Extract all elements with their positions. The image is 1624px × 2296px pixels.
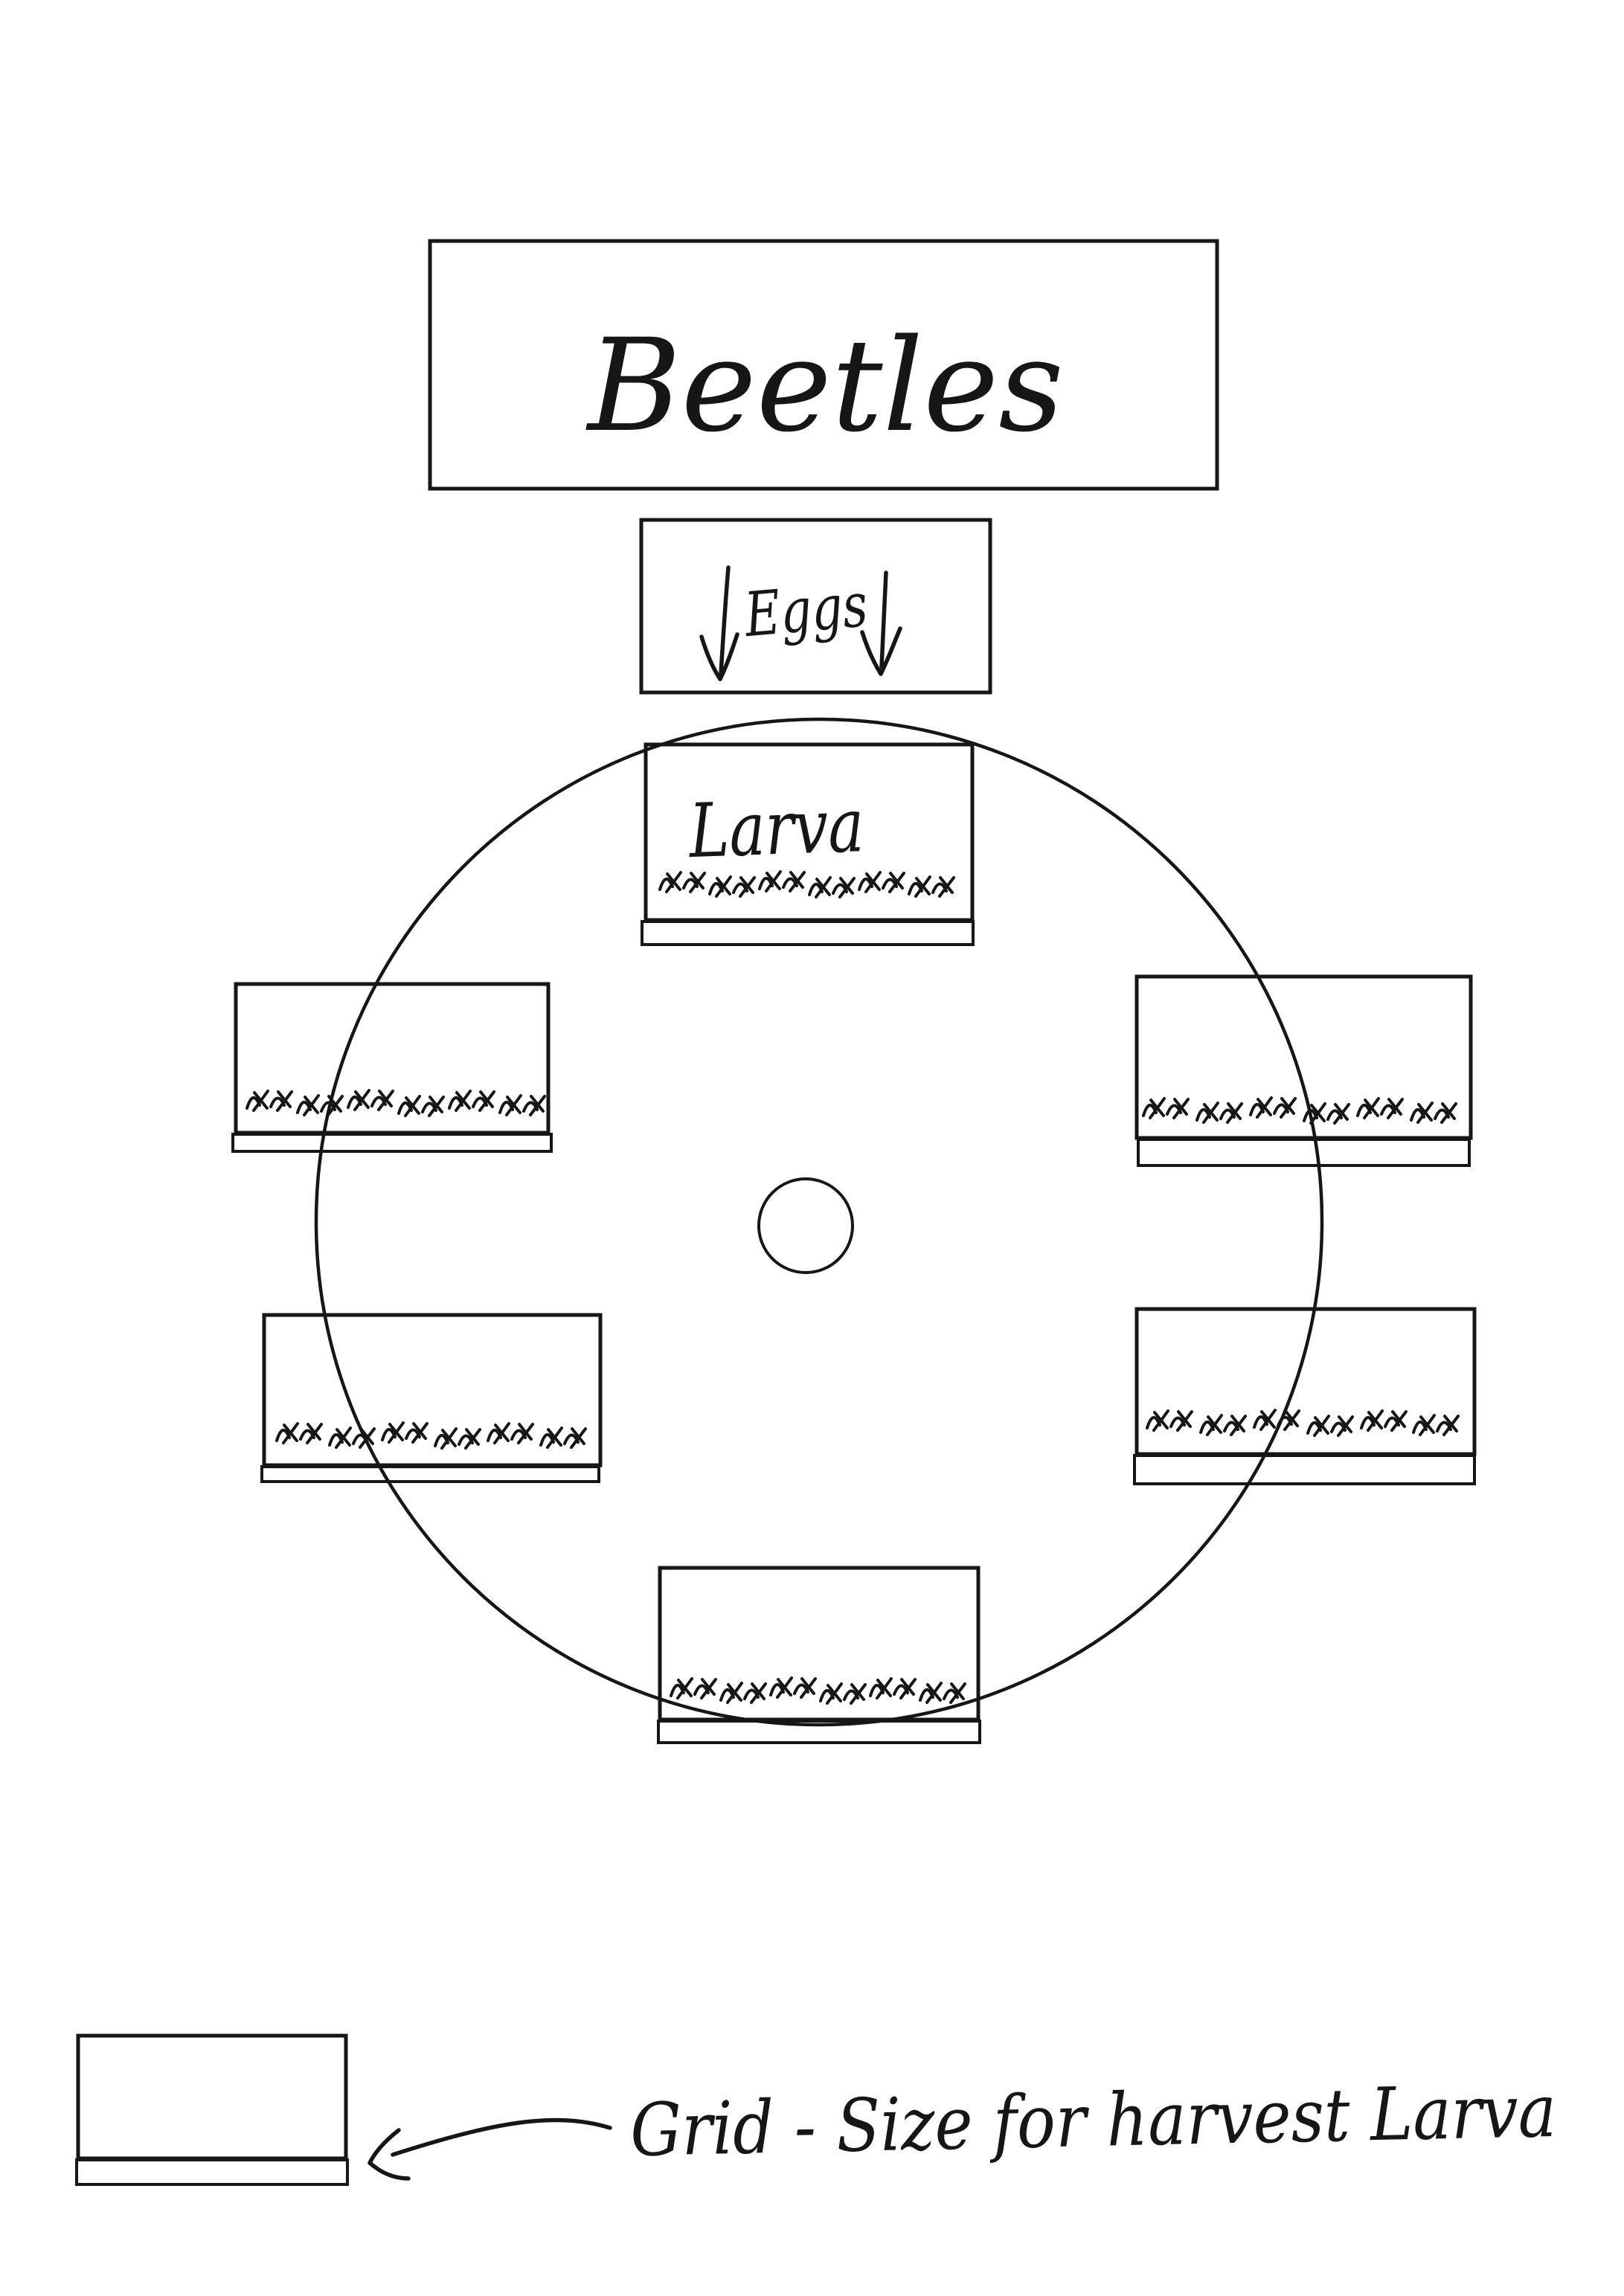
bin-left-lower bbox=[262, 1315, 600, 1482]
grid-sample-outline bbox=[78, 2036, 346, 2158]
center-axle-circle bbox=[759, 1179, 853, 1273]
scribble-mark bbox=[710, 877, 754, 896]
grid-sample-box bbox=[77, 2036, 347, 2184]
bin-tray bbox=[1138, 1139, 1469, 1165]
scribble-mark bbox=[660, 872, 705, 892]
scribble-mark bbox=[1308, 1416, 1352, 1435]
scribble-mark bbox=[821, 1684, 865, 1703]
larva-box-tray bbox=[642, 922, 973, 945]
larva-scribbles bbox=[247, 1090, 545, 1116]
scribble-mark bbox=[247, 1091, 292, 1110]
caption-group: Grid - Size for harvest Larva bbox=[370, 2069, 1557, 2178]
eggs-box-label: Eggs bbox=[741, 570, 870, 651]
bin-outline bbox=[1137, 1309, 1474, 1454]
scribble-mark bbox=[1197, 1103, 1242, 1122]
scribble-mark bbox=[348, 1090, 393, 1110]
arrow-shaft bbox=[882, 573, 886, 667]
scribble-mark bbox=[771, 1678, 815, 1697]
larva-scribbles bbox=[1147, 1410, 1458, 1435]
arrow-head-upper bbox=[370, 2130, 399, 2163]
scribble-mark bbox=[541, 1428, 585, 1447]
scribble-mark bbox=[435, 1429, 480, 1448]
bin-tray bbox=[262, 1467, 599, 1482]
arrow-head-lower bbox=[370, 2163, 408, 2178]
bin-right-lower bbox=[1134, 1309, 1474, 1484]
scribble-mark bbox=[1251, 1098, 1295, 1117]
bin-bottom bbox=[658, 1568, 980, 1743]
title-box-label: Beetles bbox=[585, 311, 1064, 460]
eggs-box: Eggs bbox=[641, 520, 990, 692]
bin-tray bbox=[1134, 1456, 1474, 1484]
scribble-mark bbox=[1358, 1099, 1402, 1118]
beetles-diagram: Beetles Eggs bbox=[0, 0, 1624, 2296]
scribble-mark bbox=[870, 1679, 915, 1698]
ink-layer: Beetles Eggs bbox=[77, 241, 1557, 2184]
scribble-mark bbox=[488, 1424, 533, 1443]
scribble-mark bbox=[399, 1096, 443, 1116]
bin-left-upper bbox=[233, 984, 551, 1151]
left-arrow-icon bbox=[370, 2120, 610, 2178]
larva-box-label: Larva bbox=[687, 782, 866, 875]
larva-scribbles bbox=[671, 1678, 965, 1703]
scribble-mark bbox=[671, 1679, 716, 1698]
scribble-mark bbox=[1254, 1410, 1299, 1430]
larva-scribbles bbox=[660, 872, 954, 897]
scribble-mark bbox=[909, 877, 954, 896]
scribble-mark bbox=[721, 1683, 766, 1702]
scribble-mark bbox=[1413, 1415, 1458, 1435]
grid-sample-tray bbox=[77, 2160, 347, 2184]
larva-scribbles bbox=[277, 1423, 585, 1448]
caption-label: Grid - Size for harvest Larva bbox=[629, 2069, 1557, 2173]
title-box: Beetles bbox=[430, 241, 1217, 489]
bin-right-upper bbox=[1137, 977, 1471, 1165]
scribble-mark bbox=[277, 1424, 321, 1443]
scribble-mark bbox=[449, 1091, 494, 1110]
scribble-mark bbox=[382, 1423, 427, 1442]
scribble-mark bbox=[1361, 1411, 1406, 1430]
scribble-mark bbox=[1143, 1099, 1188, 1118]
scribble-mark bbox=[1411, 1103, 1456, 1122]
scribble-mark bbox=[920, 1683, 965, 1702]
scribble-mark bbox=[1201, 1415, 1245, 1435]
scribble-mark bbox=[809, 878, 854, 897]
down-arrow-icon bbox=[702, 567, 737, 679]
larva-scribbles bbox=[1143, 1098, 1456, 1123]
larva-box: Larva bbox=[642, 745, 973, 945]
arrow-head-left bbox=[862, 632, 881, 674]
whiteboard-canvas: Beetles Eggs bbox=[0, 0, 1624, 2296]
scribble-mark bbox=[500, 1096, 545, 1115]
scribble-mark bbox=[859, 872, 904, 892]
scribble-mark bbox=[1147, 1411, 1192, 1430]
bin-tray bbox=[233, 1134, 551, 1151]
arrow-head-left bbox=[702, 637, 720, 679]
scribble-mark bbox=[760, 872, 804, 891]
arrow-shaft bbox=[393, 2120, 610, 2155]
scribble-mark bbox=[298, 1096, 342, 1115]
